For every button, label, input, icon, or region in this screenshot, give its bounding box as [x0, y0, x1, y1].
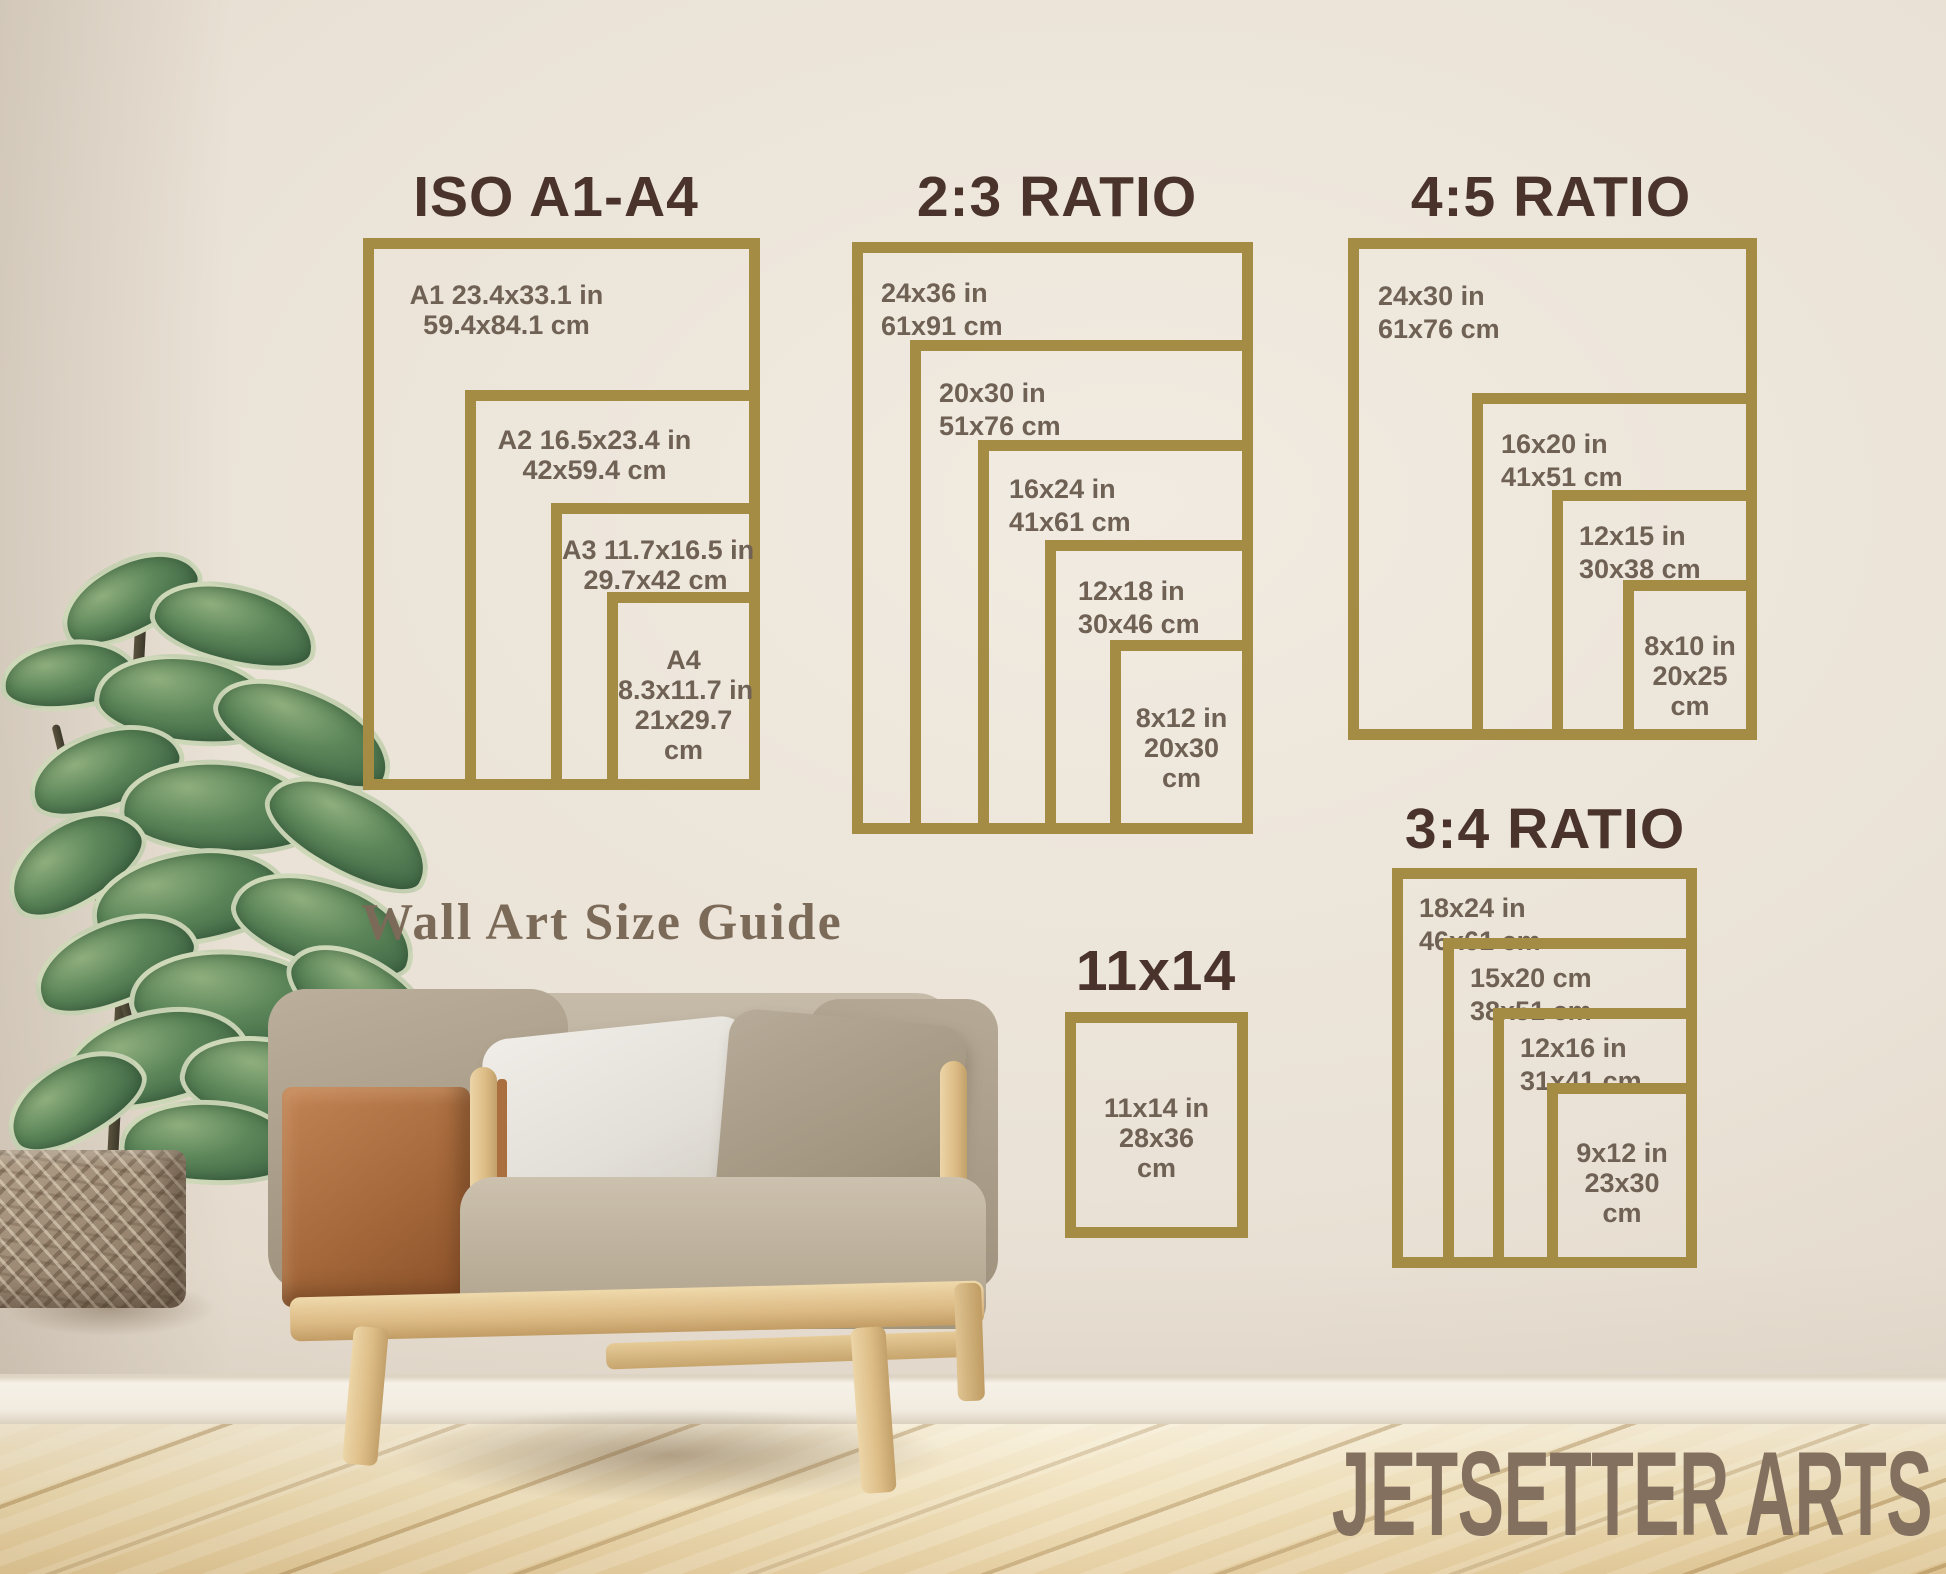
size-label: 16x20 in41x51 cm — [1501, 428, 1623, 494]
size-label: 8x12 in20x30cm — [1121, 703, 1242, 793]
size-label: A1 23.4x33.1 in59.4x84.1 cm — [374, 280, 639, 340]
group-title: 4:5 RATIO — [1351, 164, 1751, 230]
size-frame-8x10: 8x10 in20x25cm — [1623, 580, 1757, 740]
group-title: ISO A1-A4 — [356, 164, 756, 230]
size-label: 12x15 in30x38 cm — [1579, 520, 1701, 586]
size-label: A48.3x11.7 in21x29.7cm — [618, 645, 749, 765]
caption-wall-art-size-guide: Wall Art Size Guide — [332, 893, 872, 952]
chair-stretcher-rail — [606, 1330, 983, 1369]
size-frame-9x12: 9x12 in23x30cm — [1547, 1083, 1697, 1268]
size-label: 8x10 in20x25cm — [1634, 631, 1746, 721]
size-label: A3 11.7x16.5 in29.7x42 cm — [562, 535, 749, 595]
size-frame-8x12: 8x12 in20x30cm — [1110, 640, 1253, 834]
size-frame-11x14: 11x14 in28x36cm — [1065, 1012, 1248, 1238]
group-title: 2:3 RATIO — [857, 164, 1257, 230]
size-label: A2 16.5x23.4 in42x59.4 cm — [476, 425, 713, 485]
armchair — [268, 985, 1002, 1505]
chair-leg-rear-right — [954, 1283, 985, 1402]
size-label: 16x24 in41x61 cm — [1009, 473, 1131, 539]
group-title: 3:4 RATIO — [1345, 796, 1745, 862]
size-label: 9x12 in23x30cm — [1558, 1138, 1686, 1228]
size-label: 24x30 in61x76 cm — [1378, 280, 1500, 346]
watermark-jetsetter-arts: JETSETTER ARTS — [1332, 1444, 1932, 1544]
room-scene: ISO A1-A4 A1 23.4x33.1 in59.4x84.1 cm A2… — [0, 0, 1946, 1574]
size-label: 11x14 in28x36cm — [1076, 1093, 1237, 1183]
size-label: 12x18 in30x46 cm — [1078, 575, 1200, 641]
leather-side-panel — [282, 1087, 470, 1307]
group-title: 11x14 — [1056, 938, 1256, 1004]
plant-basket — [0, 1150, 186, 1308]
size-label: 24x36 in61x91 cm — [881, 277, 1003, 343]
size-frame-a4: A48.3x11.7 in21x29.7cm — [607, 592, 760, 790]
chair-leg-front-left — [342, 1326, 389, 1467]
size-label: 20x30 in51x76 cm — [939, 377, 1061, 443]
